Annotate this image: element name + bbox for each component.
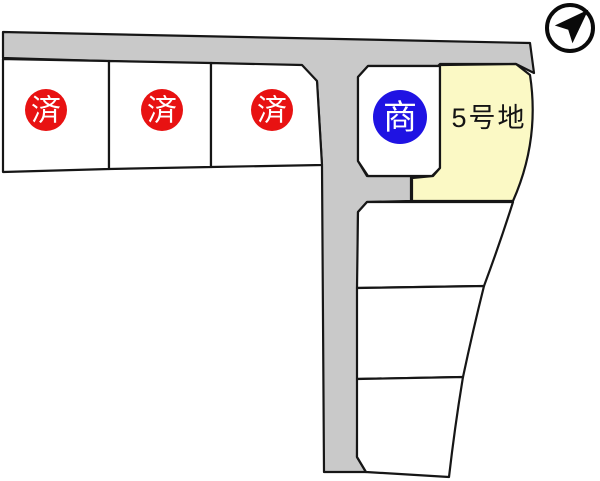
sold-badge-2-label: 済 [147,95,177,128]
sold-badge-3-label: 済 [257,95,287,128]
sold-badge-2: 済 [141,89,183,131]
lot-5-label: 5号地 [451,103,526,133]
sold-badge-1: 済 [25,89,67,131]
lot-6 [357,202,513,288]
negotiating-badge: 商 [373,90,427,144]
lot-map: 済 済 済 商 5号地 [0,0,600,481]
lot-7 [357,286,484,379]
sold-badge-1-label: 済 [31,95,61,128]
negotiating-badge-label: 商 [383,99,417,137]
lot-map-canvas: 済 済 済 商 5号地 [0,0,600,481]
north-arrow-icon [547,1,597,51]
lot-8 [357,377,463,477]
sold-badge-3: 済 [251,89,293,131]
